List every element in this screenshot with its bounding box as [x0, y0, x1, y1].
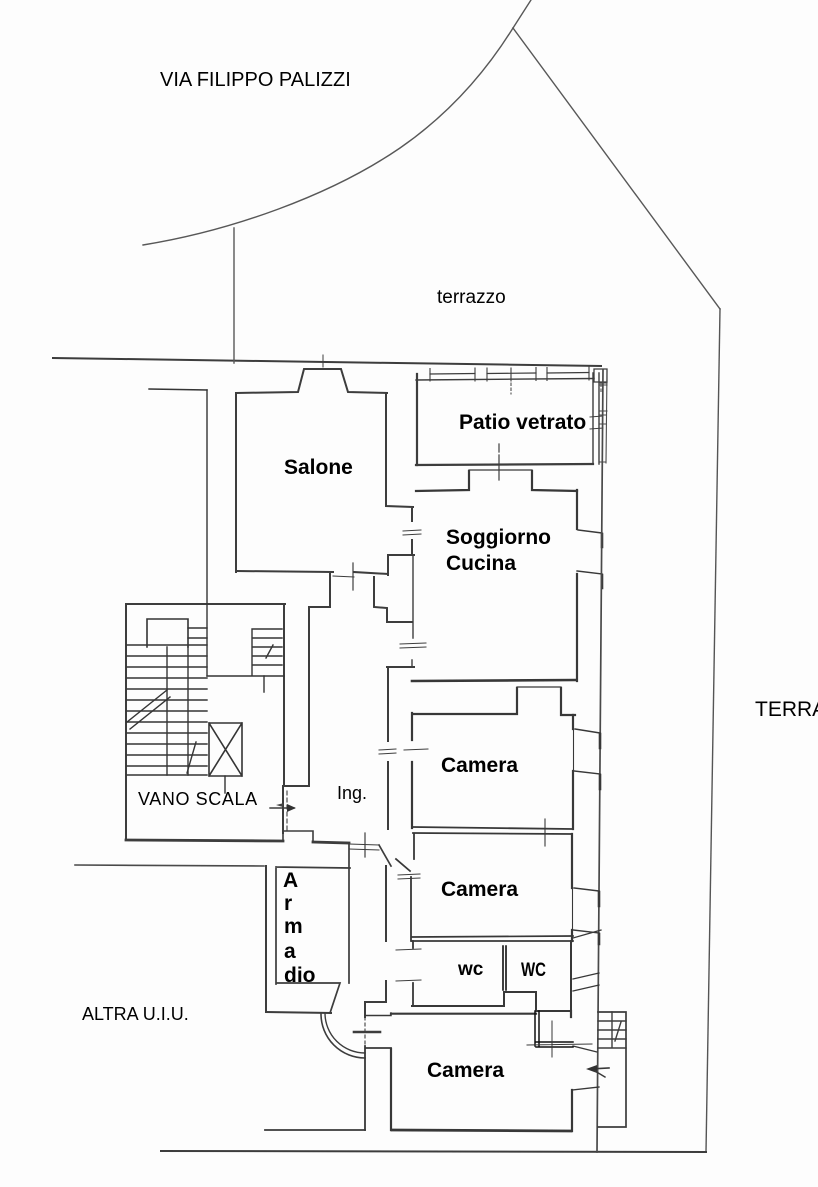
- svg-text:Patio vetrato: Patio vetrato: [459, 411, 586, 434]
- svg-text:WC: WC: [521, 960, 546, 981]
- svg-text:Camera: Camera: [441, 878, 518, 901]
- svg-text:m: m: [284, 915, 303, 938]
- svg-text:Soggiorno: Soggiorno: [446, 526, 551, 549]
- svg-text:VIA FILIPPO PALIZZI: VIA FILIPPO PALIZZI: [160, 69, 351, 91]
- svg-text:Salone: Salone: [284, 456, 353, 479]
- svg-text:Ing.: Ing.: [337, 783, 367, 803]
- svg-text:ALTRA U.I.U.: ALTRA U.I.U.: [82, 1004, 189, 1024]
- svg-text:a: a: [284, 940, 296, 963]
- svg-text:TERRAZZO: TERRAZZO: [755, 698, 818, 721]
- svg-text:Camera: Camera: [427, 1059, 504, 1082]
- svg-text:wc: wc: [457, 959, 484, 980]
- svg-text:terrazzo: terrazzo: [437, 287, 506, 308]
- svg-text:Cucina: Cucina: [446, 552, 516, 575]
- svg-text:dio: dio: [284, 964, 316, 987]
- svg-text:r: r: [284, 892, 292, 915]
- svg-text:A: A: [283, 869, 298, 892]
- svg-text:Camera: Camera: [441, 754, 518, 777]
- svg-text:VANO SCALA: VANO SCALA: [138, 789, 258, 809]
